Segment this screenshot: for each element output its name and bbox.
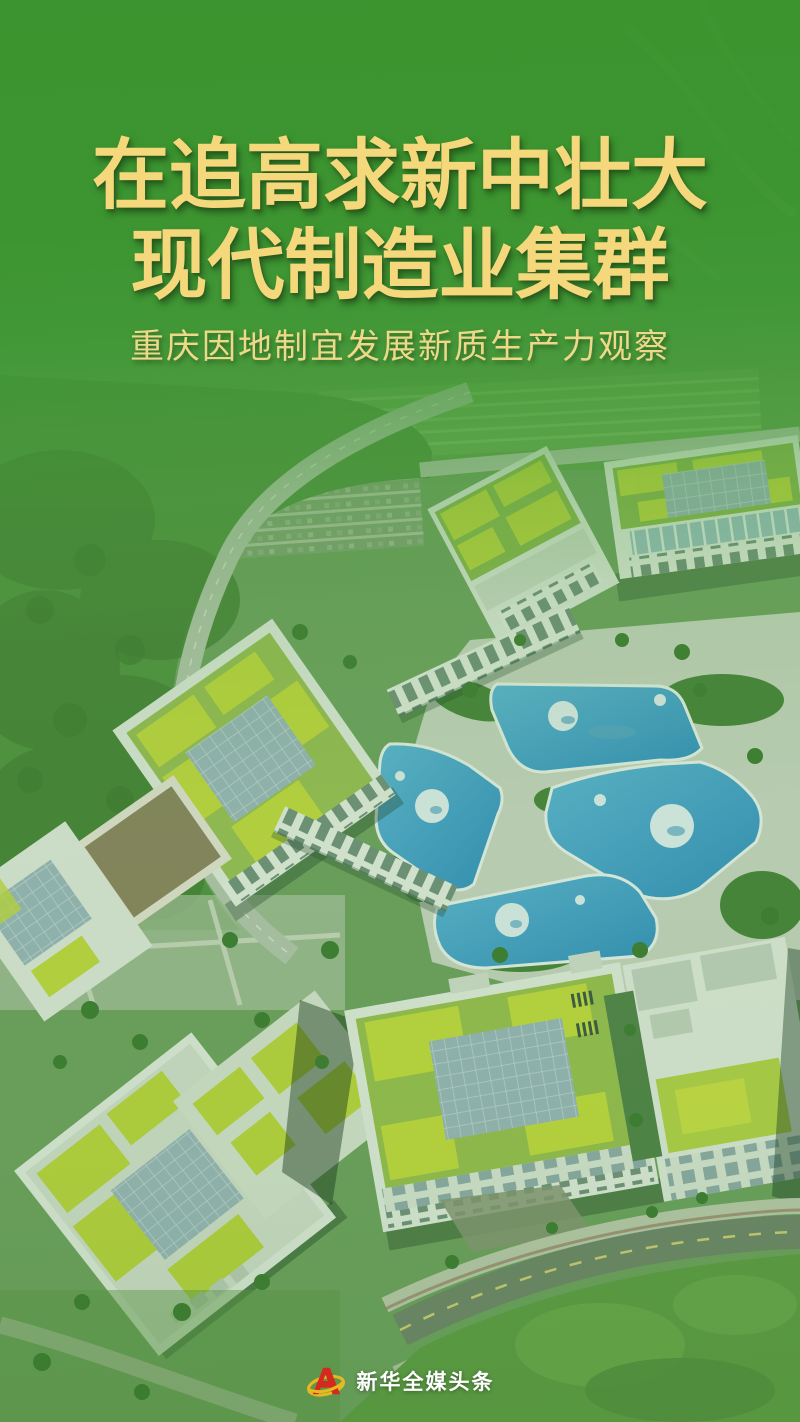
- poster: 在追高求新中壮大 现代制造业集群 重庆因地制宜发展新质生产力观察 新华全媒头条: [0, 0, 800, 1422]
- brand-footer: 新华全媒头条: [0, 1364, 800, 1398]
- title-line-2: 现代制造业集群: [0, 221, 800, 311]
- brand-name: 新华全媒头条: [357, 1366, 495, 1396]
- xinhua-logo-icon: [306, 1364, 346, 1398]
- subtitle: 重庆因地制宜发展新质生产力观察: [0, 328, 800, 368]
- title-line-1: 在追高求新中壮大: [0, 131, 800, 221]
- page-title: 在追高求新中壮大 现代制造业集群: [0, 131, 800, 311]
- headline-block: 在追高求新中壮大 现代制造业集群 重庆因地制宜发展新质生产力观察: [0, 0, 800, 368]
